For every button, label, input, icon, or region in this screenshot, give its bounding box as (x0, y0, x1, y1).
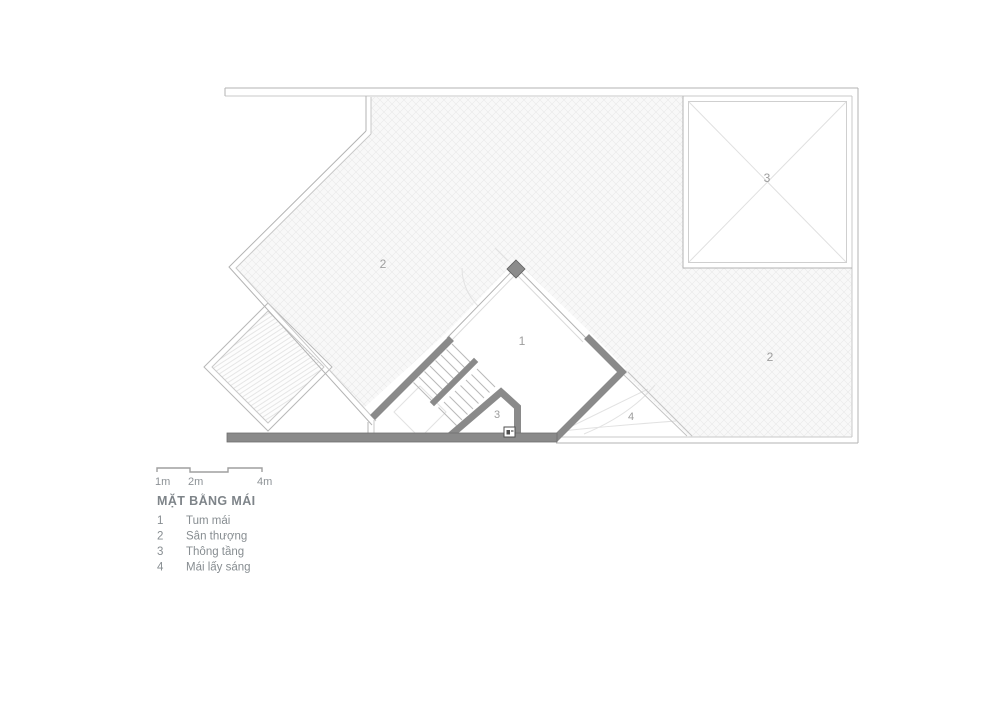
scale-tick-2m: 2m (188, 476, 203, 488)
roof-plan-drawing: 1 2 2 3 3 4 1m 2m 4m MẶT BẰNG MÁI 1 Tum … (0, 0, 1000, 707)
legend-item-3-num: 3 (157, 546, 163, 558)
legend-item: 3 Thông tầng (157, 546, 244, 558)
label-stair-void: 3 (494, 409, 500, 421)
legend-item-1-num: 1 (157, 515, 163, 527)
legend-title: MẶT BẰNG MÁI (157, 493, 256, 508)
legend-item-4-label: Mái lấy sáng (186, 562, 251, 574)
legend-item-3-label: Thông tầng (186, 546, 244, 558)
legend: MẶT BẰNG MÁI 1 Tum mái 2 Sân thượng 3 Th… (157, 493, 256, 574)
scale-tick-1m: 1m (155, 476, 170, 488)
label-tum-mai: 1 (519, 334, 526, 348)
door-symbol-icon (504, 427, 515, 437)
label-skylight-void: 3 (764, 171, 771, 185)
roof-plan-page: 1 2 2 3 3 4 1m 2m 4m MẶT BẰNG MÁI 1 Tum … (0, 0, 1000, 707)
label-skylight-roof: 4 (628, 411, 634, 423)
label-terrace-left: 2 (380, 257, 387, 271)
legend-item-2-label: Sân thượng (186, 531, 247, 543)
legend-item-1-label: Tum mái (186, 515, 230, 527)
scale-bar: 1m 2m 4m (155, 468, 272, 488)
label-terrace-right: 2 (767, 350, 774, 364)
legend-item-2-num: 2 (157, 531, 163, 543)
scale-tick-4m: 4m (257, 476, 272, 488)
legend-item: 2 Sân thượng (157, 531, 247, 543)
legend-item-4-num: 4 (157, 562, 164, 574)
legend-item: 1 Tum mái (157, 515, 230, 527)
legend-item: 4 Mái lấy sáng (157, 562, 251, 574)
